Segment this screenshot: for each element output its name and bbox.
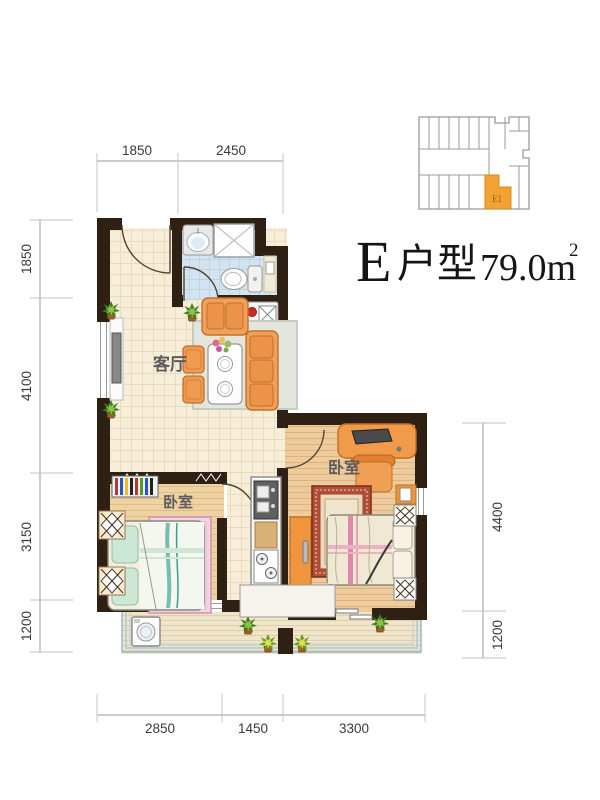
nightstand-icon bbox=[99, 567, 125, 595]
dim-right-1: 4400 bbox=[490, 502, 505, 532]
living-room-label: 客厅 bbox=[152, 354, 187, 374]
kitchen-cabinet bbox=[240, 585, 335, 617]
dim-left-2: 4100 bbox=[19, 371, 34, 401]
floorplan-page: E1 E 户型 79.0m 2 bbox=[0, 0, 600, 800]
wardrobe-icon bbox=[290, 517, 311, 586]
dim-left-4: 1200 bbox=[19, 611, 34, 641]
window-bedroom-right bbox=[415, 488, 427, 515]
key-plan: E1 bbox=[419, 117, 529, 209]
dim-top-1: 1850 bbox=[122, 143, 152, 158]
bookshelf-icon bbox=[112, 476, 158, 497]
dimension-left: 1850 4100 3150 1200 bbox=[19, 220, 73, 652]
bedroom-right-label: 卧室 bbox=[328, 458, 360, 477]
window-left-wall bbox=[97, 322, 110, 398]
window-bathroom bbox=[264, 256, 276, 292]
kitchen-counter bbox=[251, 477, 281, 585]
toilet-icon bbox=[221, 266, 262, 292]
dimension-top: 1850 2450 bbox=[97, 143, 283, 214]
sofa-icon bbox=[246, 331, 278, 410]
dimension-right: 4400 1200 bbox=[462, 423, 506, 658]
tv-cabinet-icon bbox=[110, 318, 123, 400]
loveseat-icon bbox=[202, 298, 248, 335]
key-plan-unit-label: E1 bbox=[492, 194, 502, 204]
shower-icon bbox=[214, 224, 254, 257]
dim-left-1: 1850 bbox=[19, 244, 34, 274]
dim-bottom-2: 1450 bbox=[238, 721, 268, 736]
washing-machine-icon bbox=[132, 617, 160, 646]
nightstand-icon bbox=[394, 578, 416, 600]
title-area-superscript: 2 bbox=[569, 240, 579, 261]
plan-title: E 户型 79.0m 2 bbox=[356, 229, 579, 294]
dim-bottom-1: 2850 bbox=[145, 721, 175, 736]
dim-left-3: 3150 bbox=[19, 522, 34, 552]
title-area-value: 79.0m bbox=[480, 247, 576, 289]
nightstand-icon bbox=[394, 505, 416, 526]
title-series-letter: E bbox=[356, 229, 391, 294]
desk-icon bbox=[338, 424, 416, 458]
dim-top-2: 2450 bbox=[216, 143, 246, 158]
dim-bottom-3: 3300 bbox=[339, 721, 369, 736]
bedroom-left-label: 卧室 bbox=[163, 493, 193, 511]
dim-right-2: 1200 bbox=[490, 620, 505, 650]
coffee-table-icon bbox=[208, 344, 242, 404]
sink-icon bbox=[183, 225, 213, 255]
title-type-label: 户型 bbox=[397, 241, 477, 286]
nightstand-icon bbox=[396, 485, 416, 504]
dimension-bottom: 2850 1450 3300 bbox=[97, 694, 425, 736]
floor-plan: E1 E 户型 79.0m 2 bbox=[0, 0, 600, 800]
nightstand-icon bbox=[99, 511, 125, 539]
